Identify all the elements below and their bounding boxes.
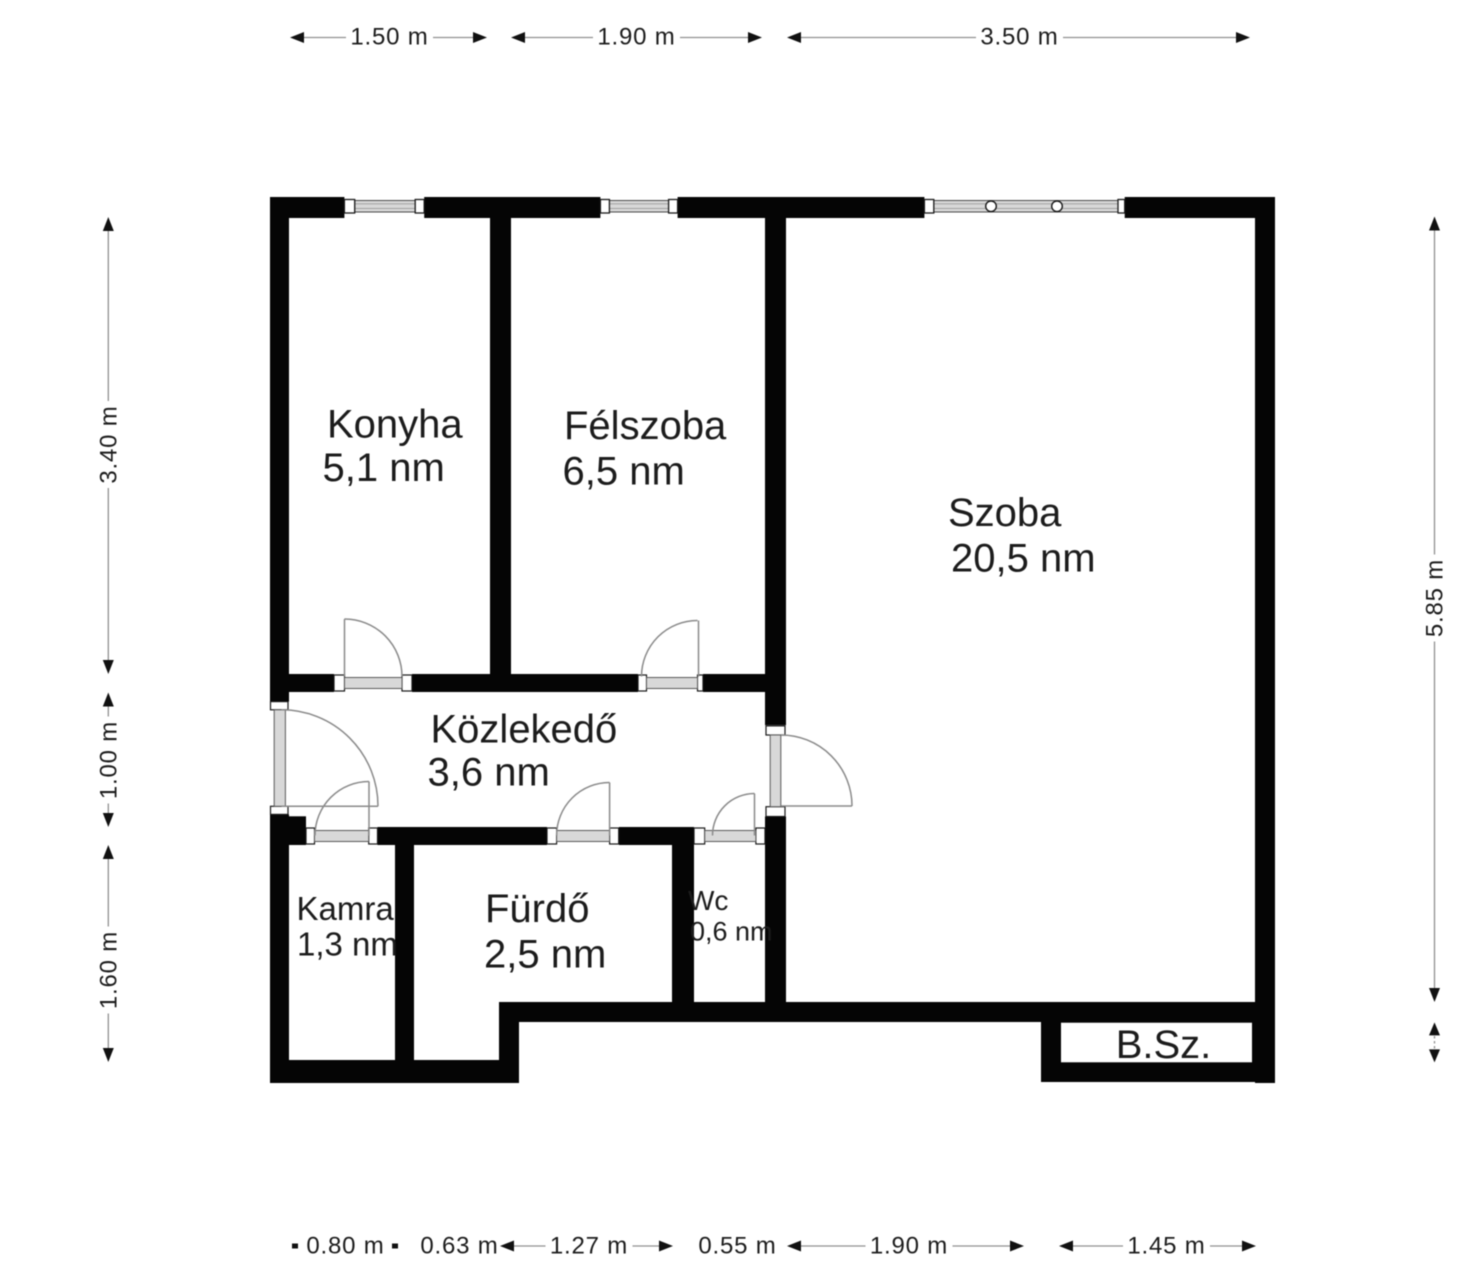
svg-text:B.Sz.: B.Sz. xyxy=(1116,1023,1212,1067)
svg-text:0.63 m: 0.63 m xyxy=(420,1233,498,1260)
svg-text:1.50 m: 1.50 m xyxy=(350,24,428,51)
svg-text:Közlekedő: Közlekedő xyxy=(431,708,618,752)
svg-text:5,1 nm: 5,1 nm xyxy=(323,446,445,490)
svg-text:1.60 m: 1.60 m xyxy=(95,931,122,1009)
svg-text:5.85 m: 5.85 m xyxy=(1422,559,1449,637)
svg-text:Kamra: Kamra xyxy=(297,890,395,927)
svg-text:1.45 m: 1.45 m xyxy=(1127,1233,1205,1260)
svg-text:3.40 m: 3.40 m xyxy=(95,405,122,483)
svg-text:0.80 m: 0.80 m xyxy=(306,1233,384,1260)
svg-text:20,5 nm: 20,5 nm xyxy=(951,537,1096,581)
svg-text:0,6 nm: 0,6 nm xyxy=(690,917,773,947)
svg-text:1,3 nm: 1,3 nm xyxy=(297,926,398,963)
svg-text:0.55 m: 0.55 m xyxy=(698,1233,776,1260)
svg-text:Félszoba: Félszoba xyxy=(564,404,727,448)
svg-text:1.27 m: 1.27 m xyxy=(550,1233,628,1260)
svg-text:6,5 nm: 6,5 nm xyxy=(563,450,685,494)
svg-text:2,5 nm: 2,5 nm xyxy=(484,933,606,977)
svg-text:Fürdő: Fürdő xyxy=(485,887,590,931)
svg-text:Konyha: Konyha xyxy=(327,403,463,447)
svg-text:3.50 m: 3.50 m xyxy=(980,24,1058,51)
svg-text:1.90 m: 1.90 m xyxy=(870,1233,948,1260)
svg-text:Wc: Wc xyxy=(688,885,728,916)
svg-text:Szoba: Szoba xyxy=(948,491,1062,535)
svg-text:1.90 m: 1.90 m xyxy=(597,24,675,51)
svg-text:3,6 nm: 3,6 nm xyxy=(428,751,550,795)
svg-text:1.00 m: 1.00 m xyxy=(95,721,122,799)
